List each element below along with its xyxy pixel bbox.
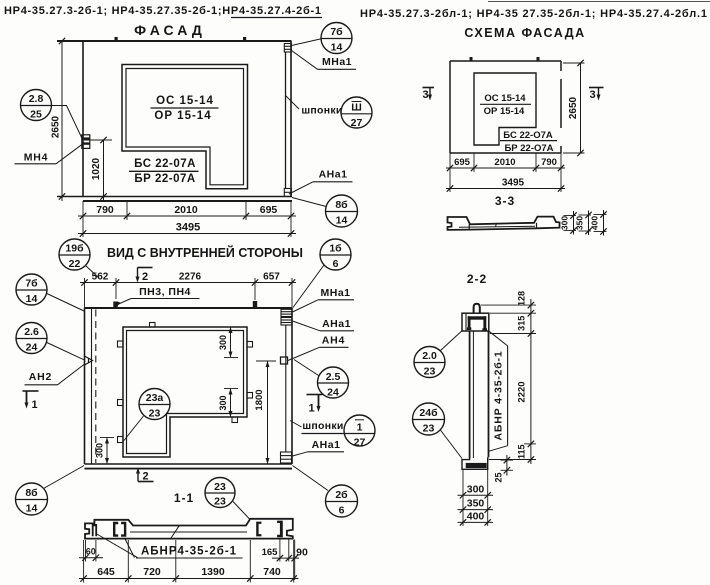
svg-text:АБНР 4-35-2б-1: АБНР 4-35-2б-1 xyxy=(493,350,505,440)
svg-text:шпонки: шпонки xyxy=(302,420,343,432)
svg-text:695: 695 xyxy=(454,157,471,168)
svg-text:23: 23 xyxy=(214,481,226,493)
svg-text:1б: 1б xyxy=(329,243,342,255)
svg-text:128: 128 xyxy=(517,291,527,306)
svg-text:400: 400 xyxy=(590,216,600,230)
svg-text:3495: 3495 xyxy=(502,178,525,189)
svg-text:350: 350 xyxy=(575,216,585,230)
svg-text:740: 740 xyxy=(263,566,281,578)
svg-text:6: 6 xyxy=(333,258,339,270)
svg-text:350: 350 xyxy=(467,498,485,510)
svg-text:2: 2 xyxy=(142,271,148,283)
svg-text:7б: 7б xyxy=(25,278,38,290)
svg-text:МНа1: МНа1 xyxy=(322,56,352,68)
svg-text:ВИД С ВНУТРЕННЕЙ СТОРОНЫ: ВИД С ВНУТРЕННЕЙ СТОРОНЫ xyxy=(107,245,303,260)
svg-text:1: 1 xyxy=(309,403,315,415)
svg-text:БР 22-07А: БР 22-07А xyxy=(134,173,195,185)
svg-text:23: 23 xyxy=(423,423,435,435)
svg-text:3: 3 xyxy=(590,89,596,101)
svg-text:6: 6 xyxy=(339,505,345,517)
svg-text:ОР 15-14: ОР 15-14 xyxy=(154,110,211,122)
svg-text:2-2: 2-2 xyxy=(467,272,487,286)
svg-text:3: 3 xyxy=(423,89,429,101)
svg-text:22: 22 xyxy=(69,258,81,270)
svg-text:АБНР4-35-2б-1: АБНР4-35-2б-1 xyxy=(141,546,237,558)
svg-text:23: 23 xyxy=(424,366,436,378)
svg-text:АН4: АН4 xyxy=(322,335,345,347)
svg-text:2б: 2б xyxy=(335,489,348,501)
svg-text:300: 300 xyxy=(95,443,105,458)
svg-text:БС 22-О7А: БС 22-О7А xyxy=(503,130,553,141)
svg-text:шпонки: шпонки xyxy=(301,105,342,117)
svg-text:300: 300 xyxy=(218,395,228,410)
svg-text:790: 790 xyxy=(541,157,557,168)
svg-text:90: 90 xyxy=(296,547,308,559)
svg-text:8б: 8б xyxy=(335,199,348,211)
svg-text:2.5: 2.5 xyxy=(326,371,341,383)
svg-text:60: 60 xyxy=(86,547,96,557)
svg-text:23: 23 xyxy=(149,408,161,420)
svg-text:25: 25 xyxy=(494,472,504,482)
svg-text:300: 300 xyxy=(560,216,570,230)
svg-text:3-3: 3-3 xyxy=(495,194,515,208)
svg-text:695: 695 xyxy=(260,204,278,216)
svg-text:27: 27 xyxy=(354,437,366,449)
svg-text:2010: 2010 xyxy=(494,157,515,168)
svg-text:7б: 7б xyxy=(330,26,343,38)
svg-text:1020: 1020 xyxy=(91,157,102,180)
svg-text:645: 645 xyxy=(97,566,115,578)
svg-text:АН2: АН2 xyxy=(29,371,52,383)
svg-text:АНа1: АНа1 xyxy=(322,318,351,330)
svg-text:ФАСАД: ФАСАД xyxy=(134,22,206,38)
svg-text:14: 14 xyxy=(26,503,38,515)
svg-text:БР 22-О7А: БР 22-О7А xyxy=(504,143,553,154)
svg-text:1: 1 xyxy=(32,399,38,411)
svg-text:2: 2 xyxy=(143,471,149,483)
svg-text:115: 115 xyxy=(517,444,527,459)
svg-text:2650: 2650 xyxy=(51,115,62,138)
svg-text:ПН3, ПН4: ПН3, ПН4 xyxy=(139,286,191,298)
svg-text:790: 790 xyxy=(96,204,114,216)
svg-text:2.6: 2.6 xyxy=(24,326,39,338)
svg-text:БС 22-07А: БС 22-07А xyxy=(134,158,196,170)
svg-text:2.0: 2.0 xyxy=(422,350,437,362)
svg-text:1: 1 xyxy=(357,422,363,434)
svg-text:165: 165 xyxy=(262,547,279,558)
svg-text:2.8: 2.8 xyxy=(29,93,44,105)
svg-text:315: 315 xyxy=(517,316,527,331)
svg-text:14: 14 xyxy=(336,215,348,227)
svg-text:23: 23 xyxy=(214,496,226,508)
svg-text:657: 657 xyxy=(263,272,280,283)
svg-text:8б: 8б xyxy=(25,487,38,499)
svg-text:МН4: МН4 xyxy=(24,152,49,164)
svg-text:14: 14 xyxy=(331,42,343,54)
svg-text:ОС 15-14: ОС 15-14 xyxy=(156,95,214,107)
svg-text:24б: 24б xyxy=(419,407,438,419)
svg-text:2650: 2650 xyxy=(568,96,579,119)
svg-text:25: 25 xyxy=(30,109,42,121)
svg-text:2276: 2276 xyxy=(179,272,202,283)
svg-text:300: 300 xyxy=(218,335,228,350)
svg-text:АНа1: АНа1 xyxy=(312,439,341,451)
svg-text:1800: 1800 xyxy=(254,389,265,410)
svg-text:Ш: Ш xyxy=(351,102,362,114)
svg-text:3495: 3495 xyxy=(176,222,200,234)
svg-text:ОС 15-14: ОС 15-14 xyxy=(484,93,526,104)
svg-text:1390: 1390 xyxy=(201,566,225,578)
svg-text:27: 27 xyxy=(351,117,363,129)
svg-text:НР4-35.27.3-2б-1; НР4-35.27.35: НР4-35.27.3-2б-1; НР4-35.27.35-2б-1;НР4-… xyxy=(4,5,321,17)
svg-text:НР4-35.27.3-2бл-1; НР4-35 27.3: НР4-35.27.3-2бл-1; НР4-35 27.35-2бл-1; Н… xyxy=(360,8,707,20)
svg-text:2220: 2220 xyxy=(517,381,528,402)
svg-text:24: 24 xyxy=(26,342,38,354)
svg-text:300: 300 xyxy=(467,484,485,496)
svg-text:1-1: 1-1 xyxy=(174,491,194,505)
svg-text:720: 720 xyxy=(143,566,161,578)
svg-text:АНа1: АНа1 xyxy=(319,169,348,181)
svg-text:МНа1: МНа1 xyxy=(320,287,350,299)
svg-text:19б: 19б xyxy=(65,243,84,255)
svg-text:400: 400 xyxy=(467,511,485,523)
svg-text:СХЕМА ФАСАДА: СХЕМА ФАСАДА xyxy=(464,26,585,40)
svg-text:23а: 23а xyxy=(146,392,164,404)
svg-text:ОР 15-14: ОР 15-14 xyxy=(484,106,525,117)
svg-text:24: 24 xyxy=(327,387,339,399)
svg-text:2010: 2010 xyxy=(174,204,198,216)
svg-text:14: 14 xyxy=(26,293,38,305)
